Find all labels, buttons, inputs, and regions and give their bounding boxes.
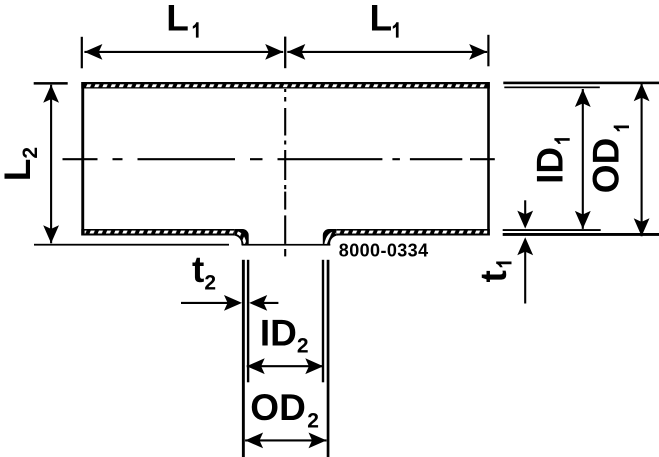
svg-text:8000-0334: 8000-0334: [339, 240, 429, 260]
svg-text:ID: ID: [529, 147, 570, 184]
svg-text:L: L: [166, 0, 189, 38]
svg-text:t: t: [473, 270, 514, 282]
svg-text:OD: OD: [586, 138, 627, 194]
svg-text:L: L: [370, 0, 393, 38]
